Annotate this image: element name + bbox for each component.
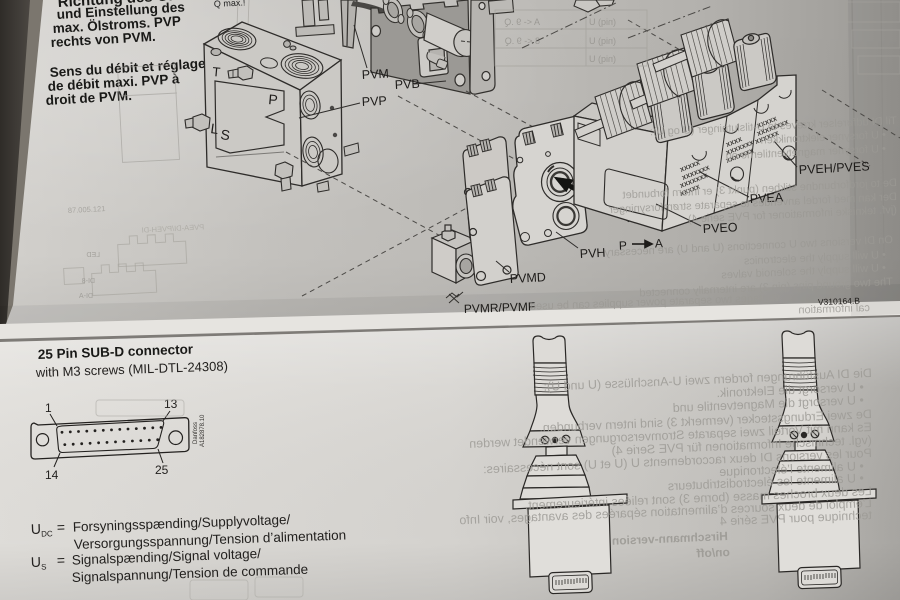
svg-text:cal information: cal information (798, 302, 870, 316)
svg-text:PVP: PVP (361, 94, 387, 109)
svg-text:A182878.10: A182878.10 (200, 414, 206, 447)
svg-text:=: = (56, 519, 65, 535)
svg-text:14: 14 (45, 468, 59, 482)
svg-text:on/off: on/off (695, 545, 730, 560)
svg-text:T: T (212, 64, 221, 80)
svg-text:(niq) U: (niq) U (589, 17, 616, 27)
svg-text:(niq) U: (niq) U (589, 54, 616, 64)
svg-text:LED: LED (86, 252, 100, 259)
svg-text:PVH: PVH (579, 246, 605, 261)
svg-text:PVM: PVM (361, 67, 389, 82)
svg-text:PVB: PVB (394, 77, 420, 92)
svg-text:Danfoss: Danfoss (193, 422, 199, 444)
svg-text:DI-8: DI-8 (82, 278, 95, 285)
svg-text:A <- 9 .Q: A <- 9 .Q (504, 17, 540, 27)
svg-text:PVMD: PVMD (509, 270, 546, 286)
svg-text:DI-A: DI-A (79, 293, 93, 300)
svg-text:8 <- 9 .Q: 8 <- 9 .Q (505, 36, 540, 46)
svg-text:P: P (268, 91, 279, 108)
svg-text:PVMR/PVMF: PVMR/PVMF (464, 300, 536, 316)
svg-text:13: 13 (164, 397, 178, 411)
svg-text:1: 1 (45, 401, 52, 415)
svg-text:(niq) U: (niq) U (589, 36, 616, 46)
svg-text:25: 25 (155, 463, 169, 477)
svg-text:=: = (56, 552, 65, 568)
